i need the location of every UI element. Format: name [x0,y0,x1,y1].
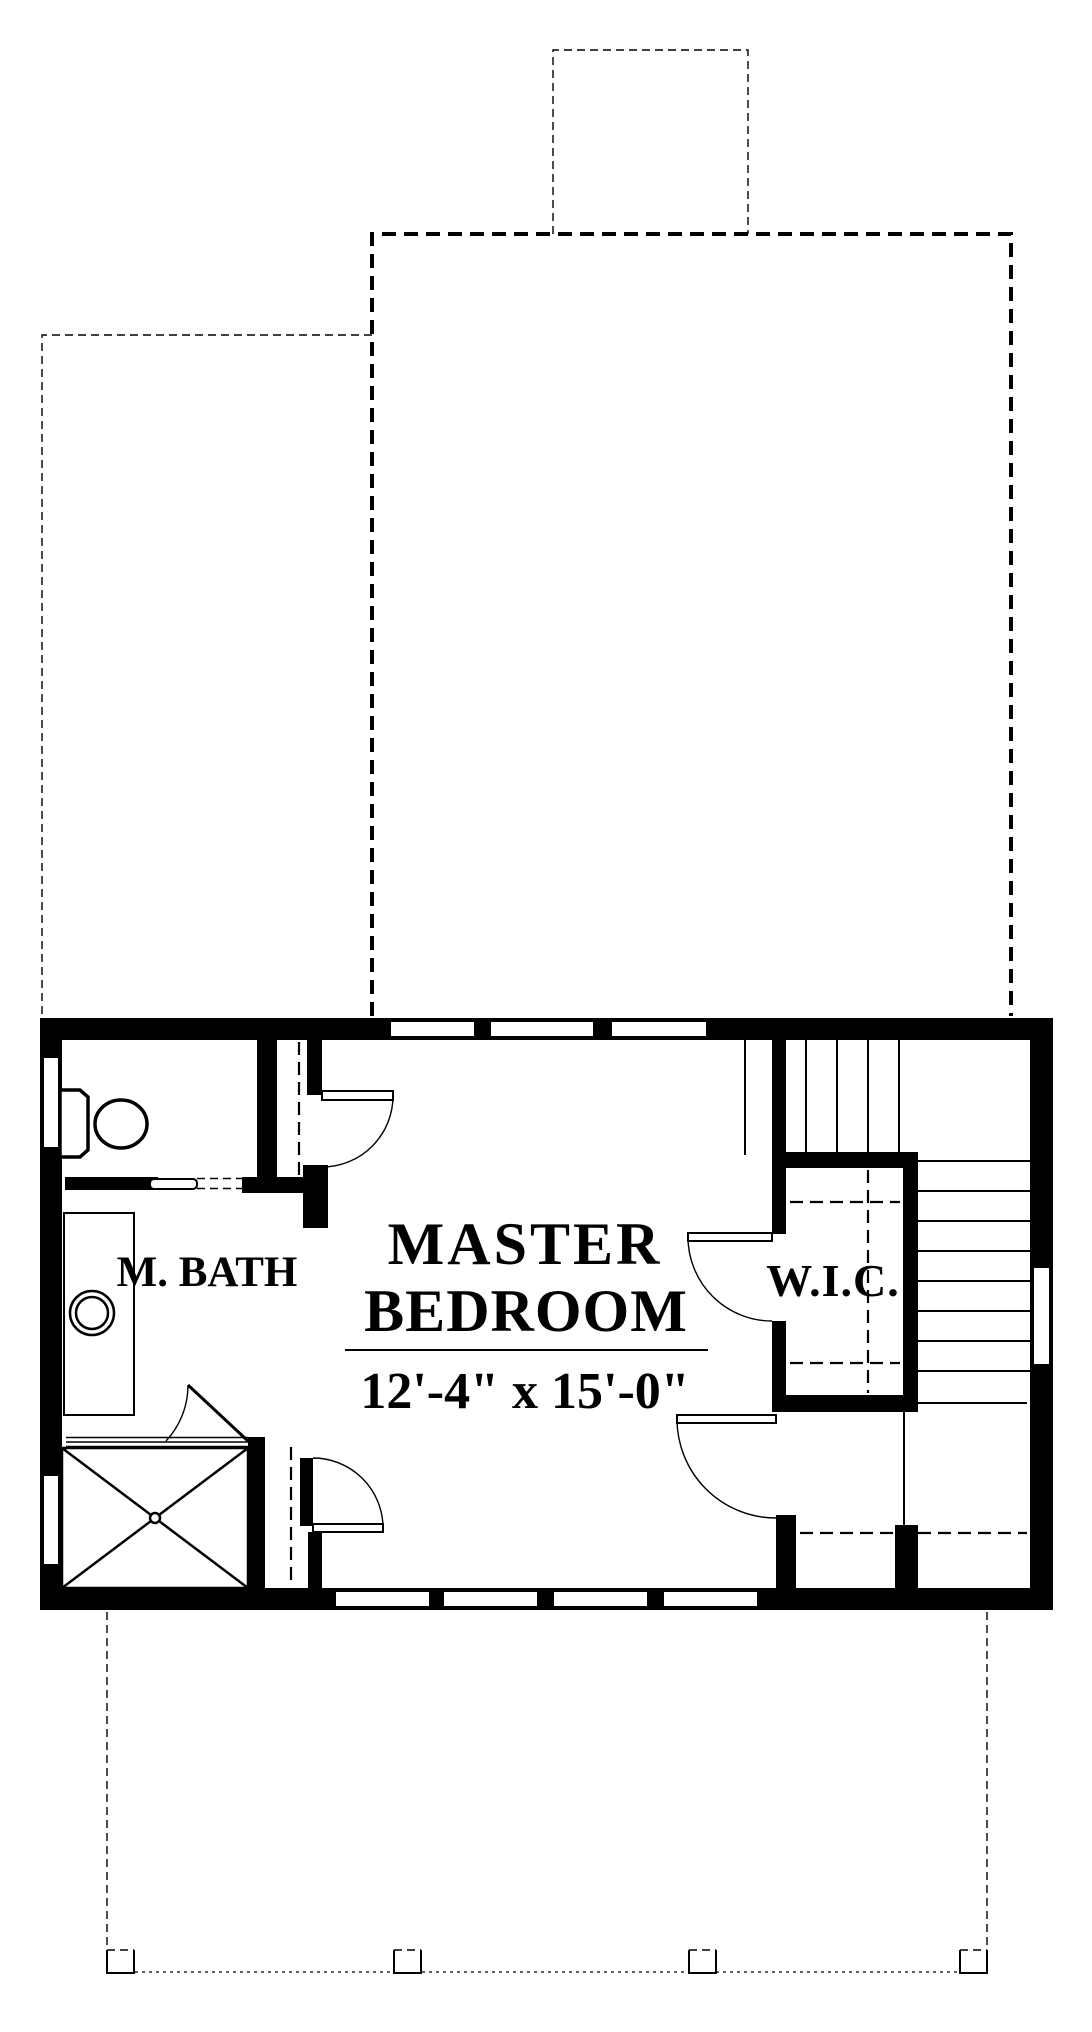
toilet-bowl [95,1100,147,1148]
toilet-room-wall [257,1040,277,1177]
window-top-1 [390,1021,475,1037]
vanity-counter [64,1213,134,1415]
shower-drain [150,1513,160,1523]
pocket-door [150,1179,242,1190]
door-leaf [677,1415,776,1423]
shower-pan [62,1448,248,1588]
landing-wall [772,1152,917,1168]
porch-post [689,1950,716,1973]
window-bottom-2 [443,1591,538,1607]
roof-outline-upper [372,234,1011,1016]
roof-outline-left [42,335,372,1016]
wic-bottom-wall [772,1395,918,1412]
porch-posts [107,1950,987,1973]
door-swing [688,1237,772,1321]
sink-fixture [70,1291,114,1335]
window-bottom-1 [335,1591,430,1607]
door-leaf [313,1524,383,1532]
master-bath-label: M. BATH [117,1249,298,1296]
wic-wall-upper [772,1168,786,1234]
door-swing [322,1096,393,1167]
window-left-2 [43,1475,59,1565]
pocket-door-wall [65,1177,158,1190]
door-leaf [188,1385,248,1441]
wic-right-wall [903,1152,918,1412]
master-bedroom-label-line2: BEDROOM [364,1278,688,1344]
window-top-2 [490,1021,594,1037]
porch-post [394,1950,421,1973]
hall-stub-wall [895,1525,918,1588]
master-bedroom-dimensions: 12'-4" x 15'-0" [360,1363,689,1420]
bedroom-entry-door [677,1415,776,1518]
pocket-door-panel [150,1179,197,1189]
stair-wall [772,1040,786,1168]
porch-post [107,1950,134,1973]
porch-post [960,1950,987,1973]
floor-plan-svg: MASTER BEDROOM 12'-4" x 15'-0" M. BATH W… [0,0,1092,2032]
walk-in-closet-label: W.I.C. [766,1255,899,1306]
door-leaf [688,1233,772,1241]
chimney-outline [553,50,748,234]
entry-door-jamb [776,1515,796,1588]
door-swing [677,1419,776,1518]
porch-outline [107,1612,987,1972]
stair-upper-run [745,1040,899,1155]
window-right-1 [1033,1267,1050,1365]
toilet-fixture [60,1090,147,1157]
window-top-3 [611,1021,707,1037]
corner-post [303,1165,328,1228]
door-swing [166,1385,188,1441]
wic-door [688,1233,772,1321]
master-bedroom-label-line1: MASTER [388,1211,663,1277]
window-left-1 [43,1057,59,1148]
toilet-door-jamb [307,1040,322,1095]
window-bottom-4 [663,1591,758,1607]
shower-wall [248,1437,265,1588]
door-swing [313,1458,383,1528]
door-leaf [322,1091,393,1100]
floor-plan: MASTER BEDROOM 12'-4" x 15'-0" M. BATH W… [0,0,1092,2032]
toilet-tank [60,1090,88,1157]
window-bottom-3 [553,1591,648,1607]
